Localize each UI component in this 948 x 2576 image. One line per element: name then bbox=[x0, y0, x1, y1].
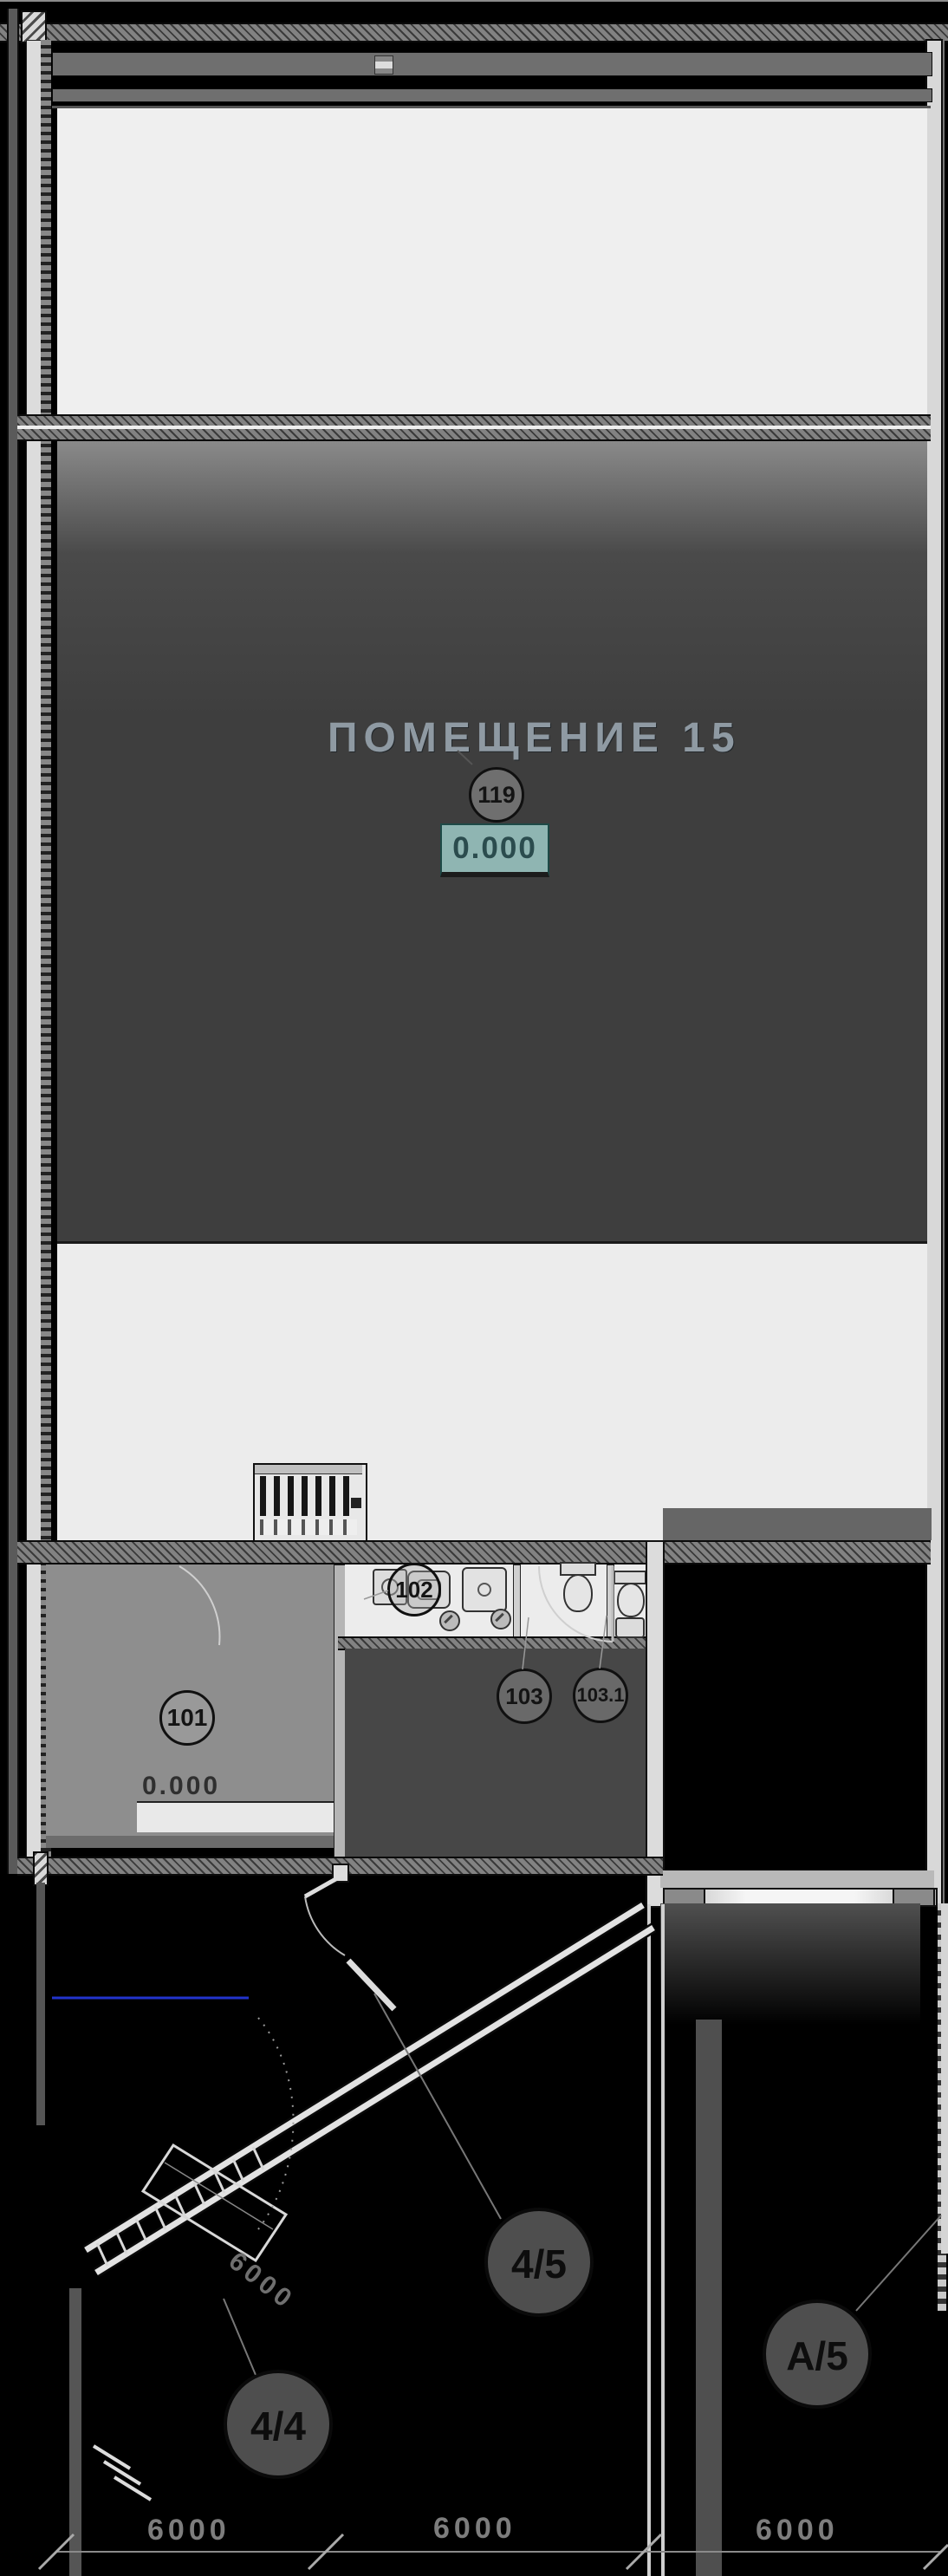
leader-119 bbox=[458, 751, 472, 764]
door-arc-small bbox=[179, 1566, 219, 1645]
exit-door-leaf bbox=[305, 1874, 345, 1896]
grid-bubble-4-4-label: 4/4 bbox=[250, 2404, 306, 2449]
leader-103-1 bbox=[600, 1616, 607, 1669]
door-arc-wide bbox=[539, 1566, 613, 1642]
dim-6000-1: 6000 bbox=[147, 2514, 231, 2547]
exit-door-arc bbox=[305, 1896, 345, 1955]
dim-6000-2: 6000 bbox=[433, 2512, 516, 2546]
leader-102 bbox=[364, 1590, 388, 1599]
leader-a-5 bbox=[856, 2215, 941, 2311]
leader-103 bbox=[523, 1617, 529, 1669]
grid-bubble-4-5-label: 4/5 bbox=[511, 2241, 567, 2287]
floor-plan: ПОМЕЩЕНИЕ 15 119 0.000 101 0.000 bbox=[0, 0, 948, 2576]
exit-door-open-leaf bbox=[348, 1961, 394, 2009]
grid-bubble-a-5-label: А/5 bbox=[786, 2333, 848, 2378]
linework-overlay: 4/5 А/5 4/4 bbox=[0, 0, 948, 2576]
gallery-wall-upper bbox=[86, 1905, 643, 2250]
leader-4-4 bbox=[224, 2299, 256, 2375]
end-steps bbox=[94, 2446, 151, 2500]
dim-6000-3: 6000 bbox=[756, 2514, 839, 2547]
